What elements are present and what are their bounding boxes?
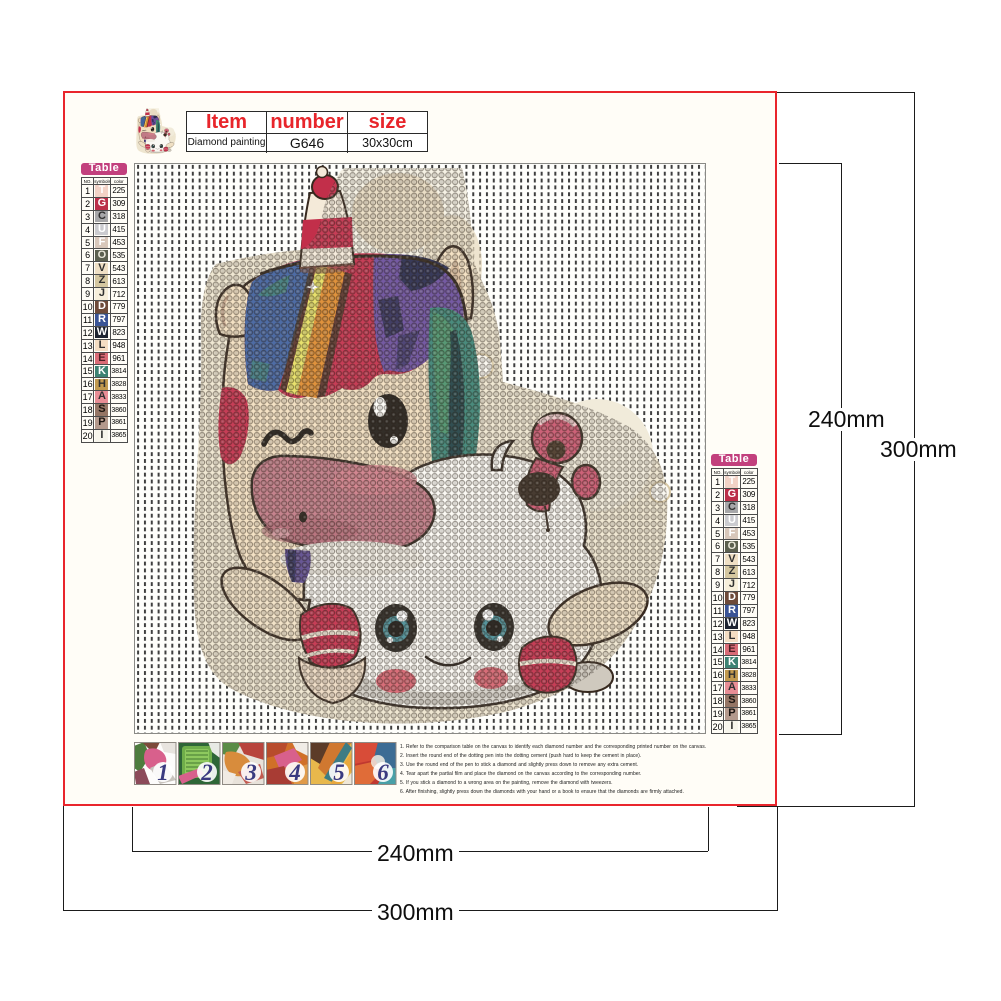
svg-text:2: 2 <box>200 760 213 785</box>
svg-text:4: 4 <box>288 760 301 785</box>
svg-text:1: 1 <box>157 760 169 785</box>
svg-text:5: 5 <box>333 760 345 785</box>
svg-text:6: 6 <box>377 760 389 785</box>
svg-text:3: 3 <box>244 760 257 785</box>
